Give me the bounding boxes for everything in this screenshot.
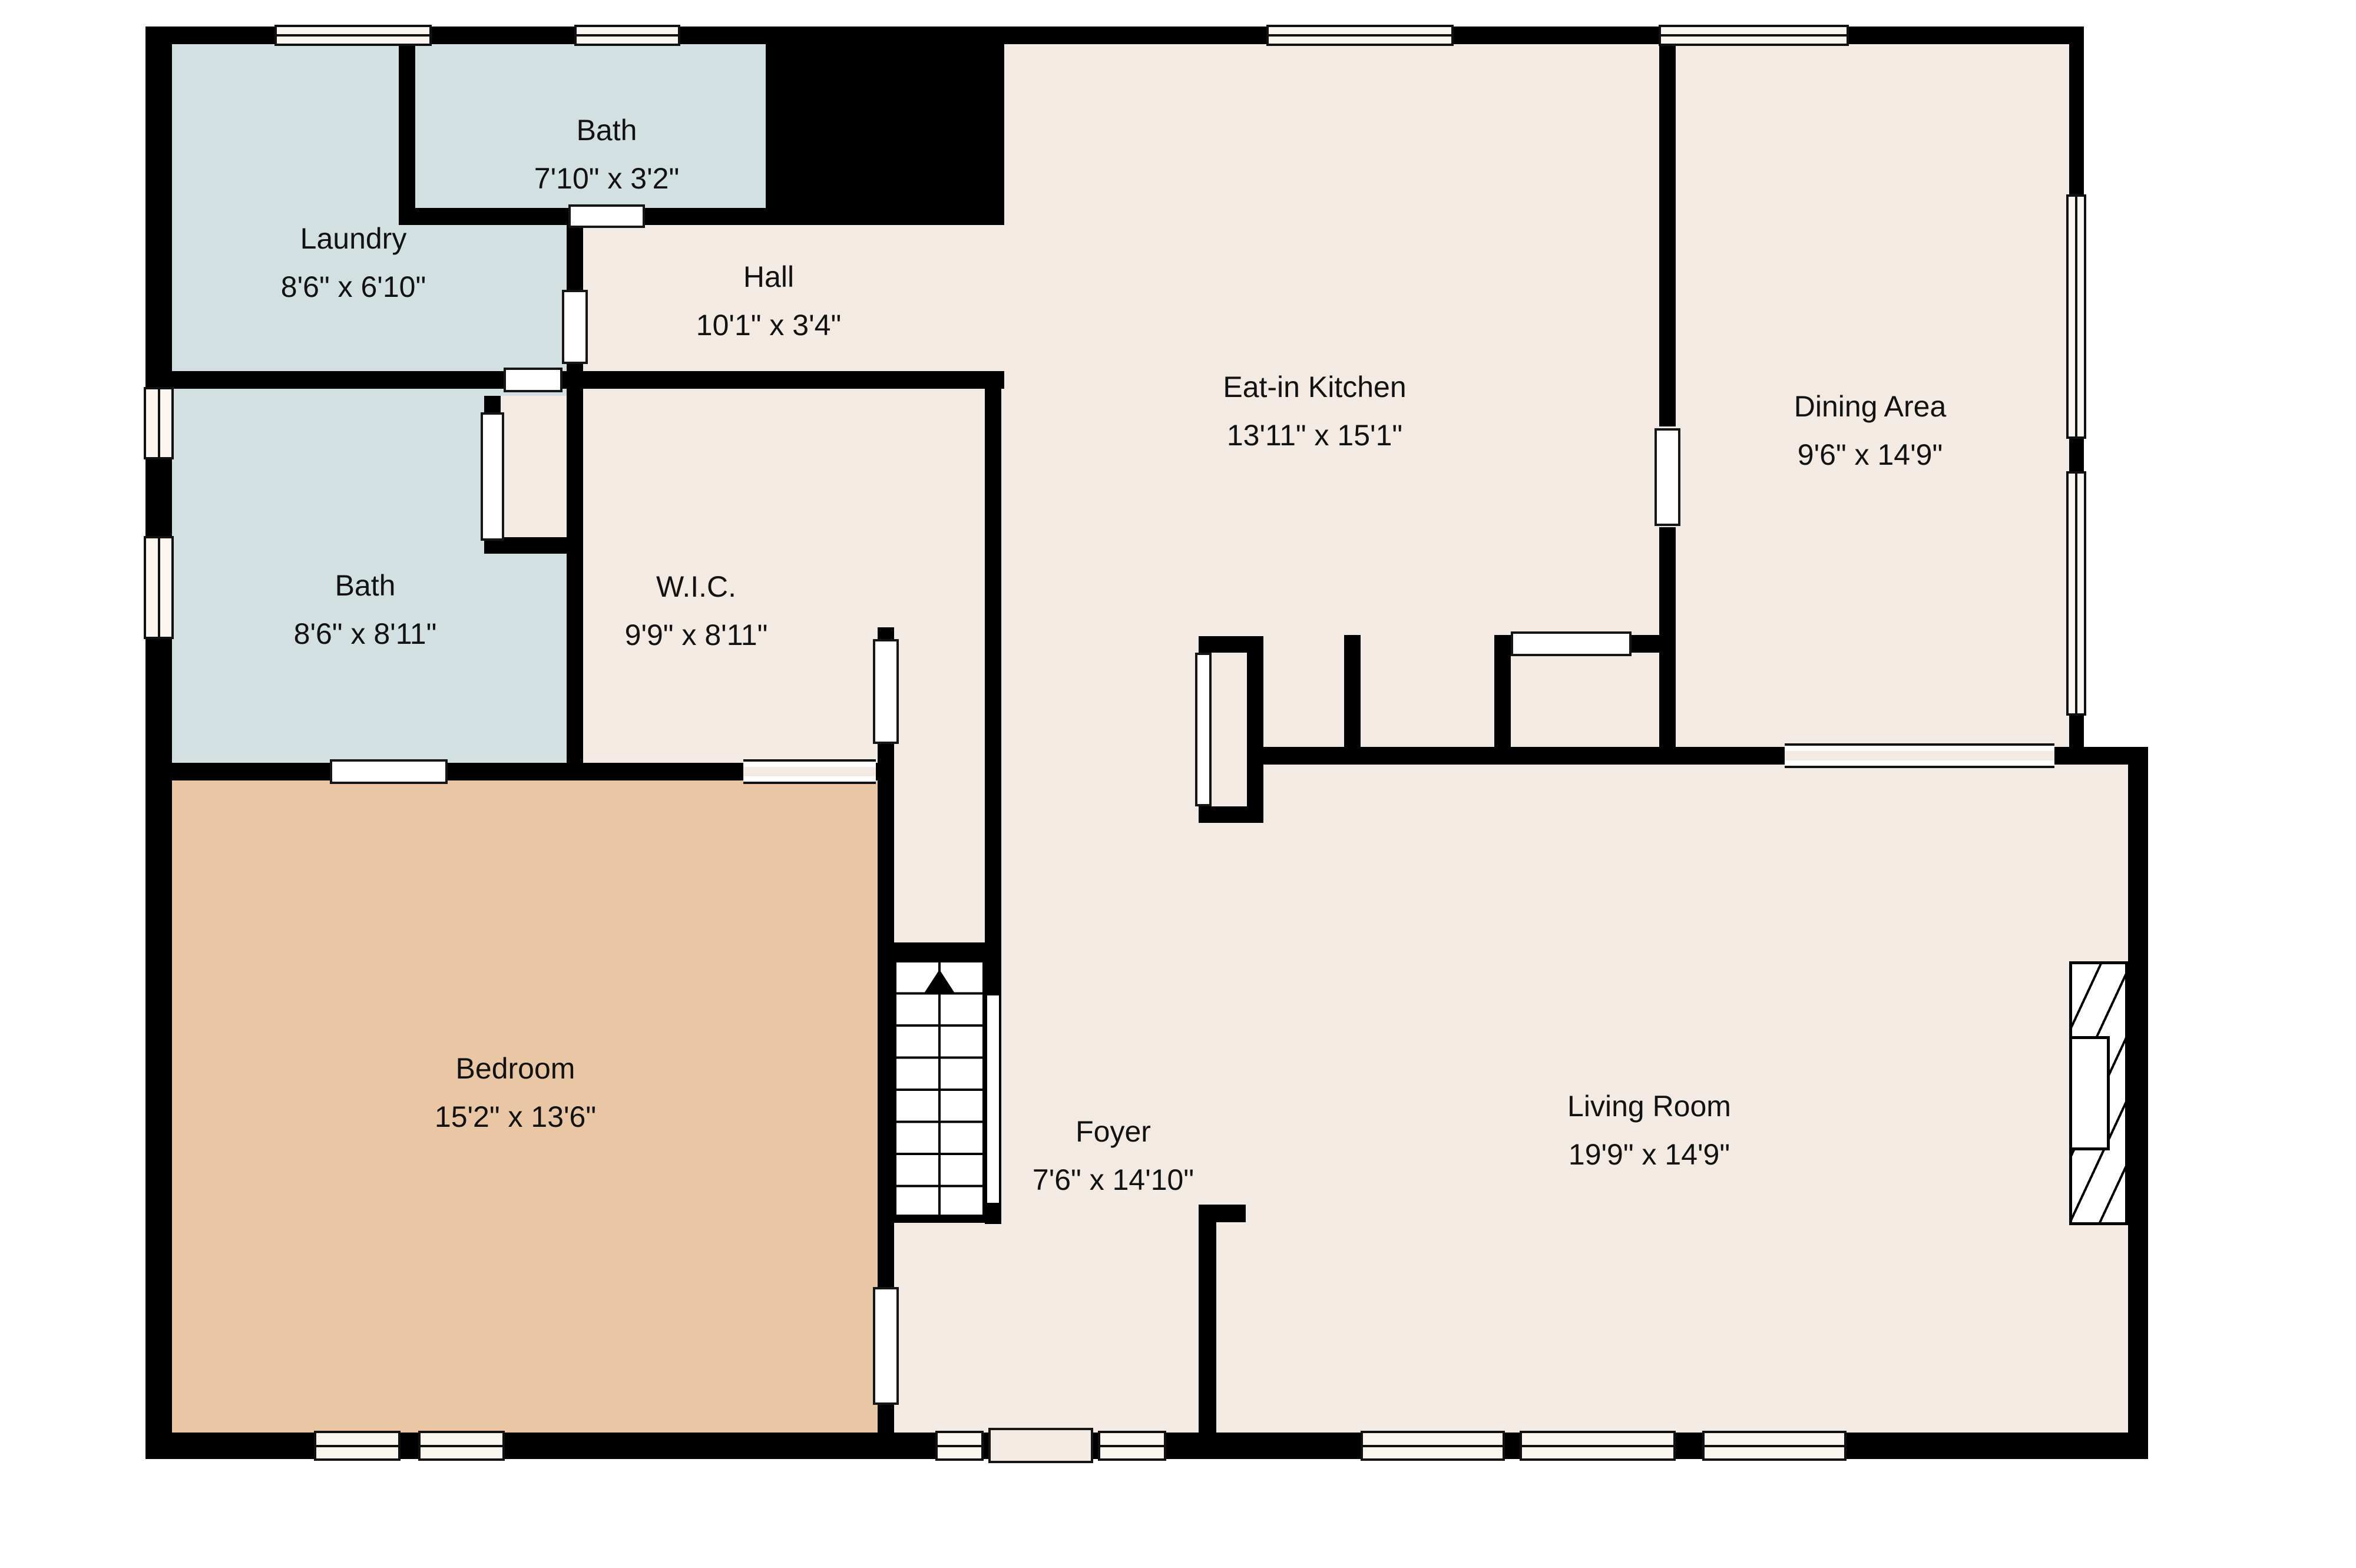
room-dims: 15'2" x 13'6": [435, 1093, 596, 1141]
exterior-wall-right-lower: [2128, 747, 2148, 1459]
room-dims: 19'9" x 14'9": [1567, 1130, 1731, 1179]
bath-lower-door: [330, 759, 448, 784]
room-name: Bedroom: [435, 1044, 596, 1093]
room-label-living: Living Room 19'9" x 14'9": [1567, 1082, 1731, 1179]
room-label-kitchen: Eat-in Kitchen 13'11" x 15'1": [1223, 363, 1406, 459]
kitchen-dining-wall-lower: [1659, 527, 1676, 765]
kitchen-living-wall: [1263, 747, 1785, 765]
room-label-dining: Dining Area 9'6" x 14'9": [1794, 382, 1947, 479]
room-name: Living Room: [1567, 1082, 1731, 1130]
room-name: Foyer: [1033, 1107, 1194, 1156]
room-dims: 10'1" x 3'4": [696, 301, 841, 349]
kitchen-closet-west-wall: [1494, 635, 1511, 763]
room-label-bedroom: Bedroom 15'2" x 13'6": [435, 1044, 596, 1141]
bath-upper-window: [574, 25, 680, 46]
room-label-hall: Hall 10'1" x 3'4": [696, 253, 841, 349]
floor-plan: Laundry 8'6" x 6'10" Bath 7'10" x 3'2" H…: [0, 0, 2356, 1568]
bath-upper-south-wall: [399, 208, 1004, 225]
foyer-closet-south-wall: [1199, 806, 1263, 823]
dining-window-right-1: [2066, 194, 2086, 439]
dining-window-right-2: [2066, 471, 2086, 716]
stair-railing: [985, 995, 1001, 1203]
room-label-laundry: Laundry 8'6" x 6'10": [281, 214, 426, 311]
room-dims: 7'6" x 14'10": [1033, 1156, 1194, 1204]
bath-closet-hall-opening: [504, 368, 562, 392]
foyer-window-right: [1098, 1431, 1166, 1461]
dining-window-top: [1659, 25, 1849, 46]
stairs-up-arrow-icon: [924, 970, 955, 993]
laundry-door: [562, 290, 588, 364]
bedroom-door: [873, 1287, 899, 1405]
room-name: Laundry: [281, 214, 426, 263]
room-dims: 13'11" x 15'1": [1223, 411, 1406, 459]
laundry-window: [274, 25, 432, 46]
room-label-bath-lower: Bath 8'6" x 8'11": [294, 561, 437, 658]
hall-south-wall: [172, 371, 1004, 389]
bedroom-window-2: [418, 1431, 505, 1461]
foyer-living-stub-v: [1199, 1205, 1216, 1433]
bedroom-window-1: [314, 1431, 401, 1461]
wic-sliding-door: [743, 759, 876, 784]
exterior-wall-left: [145, 27, 172, 1459]
room-dims: 7'10" x 3'2": [534, 154, 679, 203]
bath-closet-door: [481, 412, 504, 541]
stairs-up-arrow-shaft: [938, 992, 941, 1025]
room-dims: 9'6" x 14'9": [1794, 431, 1947, 479]
wic-door: [873, 639, 899, 744]
room-dims: 9'9" x 8'11": [625, 611, 768, 659]
room-name: Hall: [696, 253, 841, 301]
room-label-wic: W.I.C. 9'9" x 8'11": [625, 563, 768, 659]
room-name: Eat-in Kitchen: [1223, 363, 1406, 411]
room-label-foyer: Foyer 7'6" x 14'10": [1033, 1107, 1194, 1204]
room-name: Dining Area: [1794, 382, 1947, 431]
room-name: Bath: [534, 106, 679, 154]
stair-north-wall: [878, 942, 1001, 960]
living-window-3: [1702, 1431, 1847, 1461]
foyer-closet-door: [1195, 653, 1212, 806]
stair-east-wall: [985, 389, 1001, 995]
dining-living-wall-stub: [2054, 747, 2148, 765]
bath-upper-door: [568, 204, 645, 228]
chimney-block: [766, 27, 1004, 209]
room-name: W.I.C.: [625, 563, 768, 611]
room-dims: 8'6" x 8'11": [294, 610, 437, 658]
room-dims: 8'6" x 6'10": [281, 263, 426, 311]
foyer-closet-east-wall: [1247, 636, 1263, 823]
kitchen-dining-wall-upper: [1659, 44, 1676, 426]
kitchen-dining-door: [1655, 428, 1680, 526]
living-window-1: [1361, 1431, 1505, 1461]
living-dining-opening: [1785, 743, 2054, 768]
kitchen-window: [1266, 25, 1454, 46]
front-door: [988, 1428, 1093, 1463]
living-window-2: [1520, 1431, 1676, 1461]
bath-lower-window-2: [144, 536, 174, 639]
bath-upper-west-wall: [399, 44, 415, 208]
foyer-window-left: [935, 1431, 984, 1461]
room-name: Bath: [294, 561, 437, 610]
room-label-bath-upper: Bath 7'10" x 3'2": [534, 106, 679, 203]
kitchen-closet-door: [1511, 631, 1632, 656]
fireplace-firebox: [2069, 1036, 2110, 1150]
bath-lower-window-1: [144, 387, 174, 459]
kitchen-niche-west-wall: [1344, 635, 1361, 763]
